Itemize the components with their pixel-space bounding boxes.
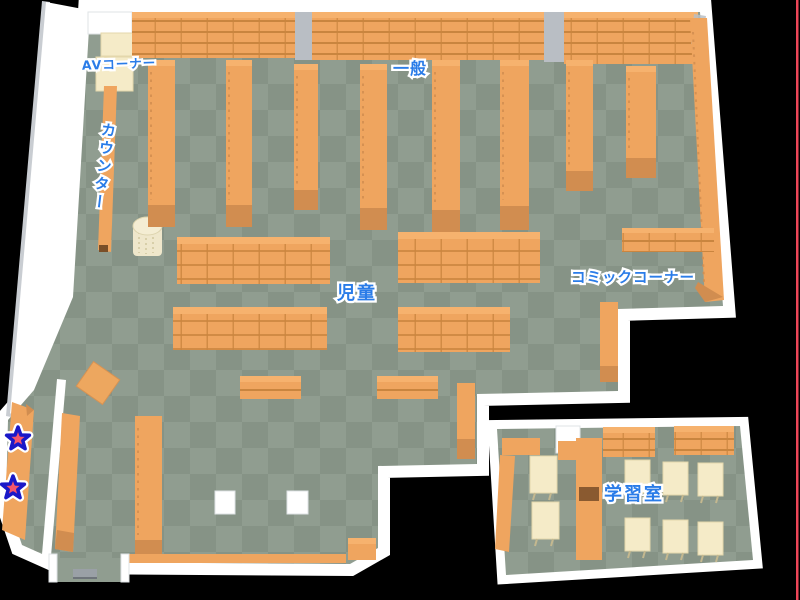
- library-floor-map: AVコーナー カウンター 一般 児童 コミックコーナー 学習室: [0, 0, 800, 600]
- study-table: [625, 518, 650, 551]
- white-table: [287, 491, 308, 514]
- av-corner-cabinet: [88, 12, 132, 34]
- area-label-av-corner: AVコーナー: [81, 52, 156, 74]
- shelf-row-end: [457, 439, 475, 459]
- kids-low-shelf-top: [377, 376, 438, 382]
- area-label-study-room: 学習室: [604, 480, 664, 506]
- wall-pillar: [544, 12, 564, 62]
- kids-shelf-bank-top: [173, 307, 327, 314]
- floor-map-canvas: [0, 0, 800, 600]
- study-table: [532, 502, 559, 539]
- study-shelf-bank-top: [603, 427, 655, 433]
- area-label-children: 児童: [337, 279, 377, 305]
- notch-shelf: [600, 302, 618, 366]
- study-divider-door: [579, 487, 599, 501]
- study-table: [698, 463, 723, 496]
- kids-shelf-bank-top: [177, 237, 330, 244]
- wall-shelf-bank-top: [132, 12, 295, 18]
- wall-shelf-bank-top: [312, 12, 544, 18]
- counter-end: [99, 245, 108, 252]
- shelf-row: [294, 64, 318, 210]
- wall-shelf-bank: [564, 12, 698, 64]
- shelf-row: [135, 416, 162, 540]
- study-table: [663, 520, 688, 553]
- study-shelf: [502, 438, 540, 455]
- notch-shelf-end: [600, 366, 618, 382]
- entrance-post: [121, 554, 129, 582]
- corner-shelf-top: [348, 538, 376, 544]
- shelf-row: [226, 60, 252, 227]
- kids-shelf-bank: [177, 237, 330, 284]
- shelf-row: [500, 60, 529, 230]
- comic-shelf-top: [622, 228, 714, 233]
- kids-shelf-bank: [398, 232, 540, 283]
- shelf-row: [566, 60, 593, 191]
- kids-shelf-bank-top: [398, 307, 510, 314]
- screen-edge-red-line: [796, 0, 799, 600]
- shelf-row: [626, 66, 656, 178]
- shelf-row-end: [55, 530, 74, 552]
- study-shelf: [558, 441, 577, 460]
- bottom-wall-shelf: [128, 554, 346, 563]
- study-table: [530, 456, 557, 493]
- entrance: [49, 554, 129, 582]
- kids-low-shelf-top: [240, 376, 301, 382]
- study-shelf-bank-top: [674, 426, 734, 432]
- study-table: [698, 522, 723, 555]
- kids-shelf-bank-top: [398, 232, 540, 239]
- wall-shelf-bank: [132, 12, 295, 58]
- wall-pillar: [295, 12, 312, 60]
- area-label-general: 一般: [393, 55, 427, 79]
- shelf-row: [432, 60, 460, 232]
- shelf-row: [457, 383, 475, 439]
- white-table: [215, 491, 235, 514]
- area-label-comic-corner: コミックコーナー: [571, 267, 695, 288]
- wall-shelf-bank: [312, 12, 544, 60]
- wall-shelf-bank-top: [564, 12, 698, 18]
- shelf-row: [148, 60, 175, 227]
- study-table: [663, 462, 688, 495]
- entrance-post: [49, 554, 57, 582]
- entrance-gate: [73, 569, 97, 578]
- shelf-row: [360, 64, 387, 230]
